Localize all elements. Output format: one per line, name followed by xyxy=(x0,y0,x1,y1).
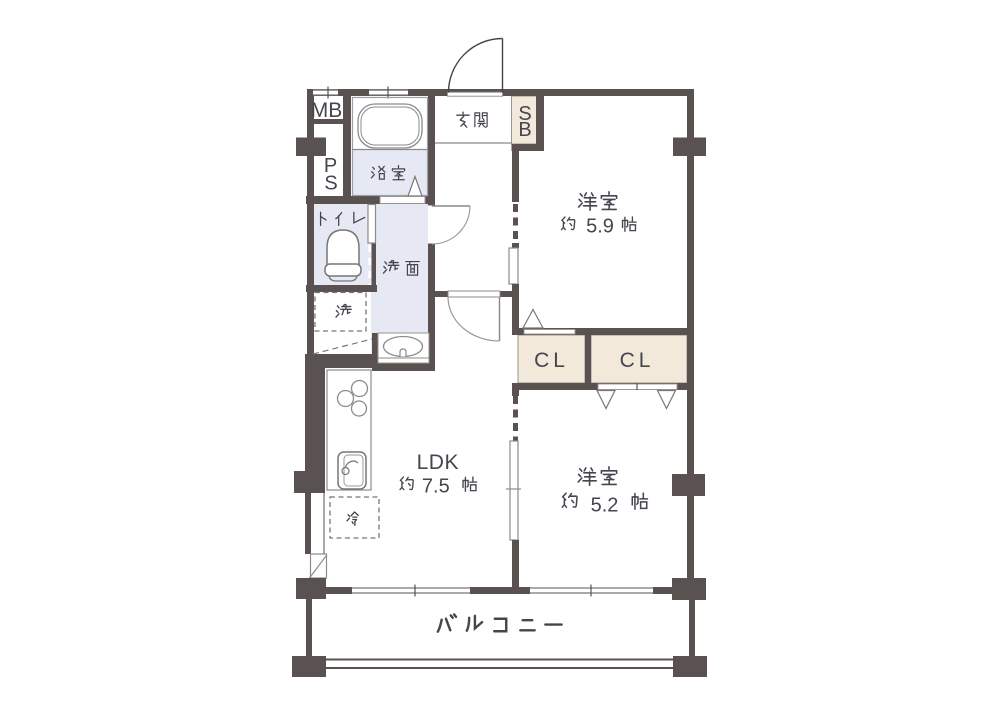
svg-text:B: B xyxy=(518,119,531,141)
svg-text:LDK: LDK xyxy=(417,451,459,474)
svg-text:CL: CL xyxy=(534,349,569,372)
svg-text:7.5: 7.5 xyxy=(422,475,450,497)
svg-text:5.2: 5.2 xyxy=(591,495,619,517)
svg-text:S: S xyxy=(324,173,337,195)
svg-text:5.9: 5.9 xyxy=(586,216,614,238)
svg-text:CL: CL xyxy=(620,349,655,372)
svg-text:MB: MB xyxy=(311,99,343,122)
